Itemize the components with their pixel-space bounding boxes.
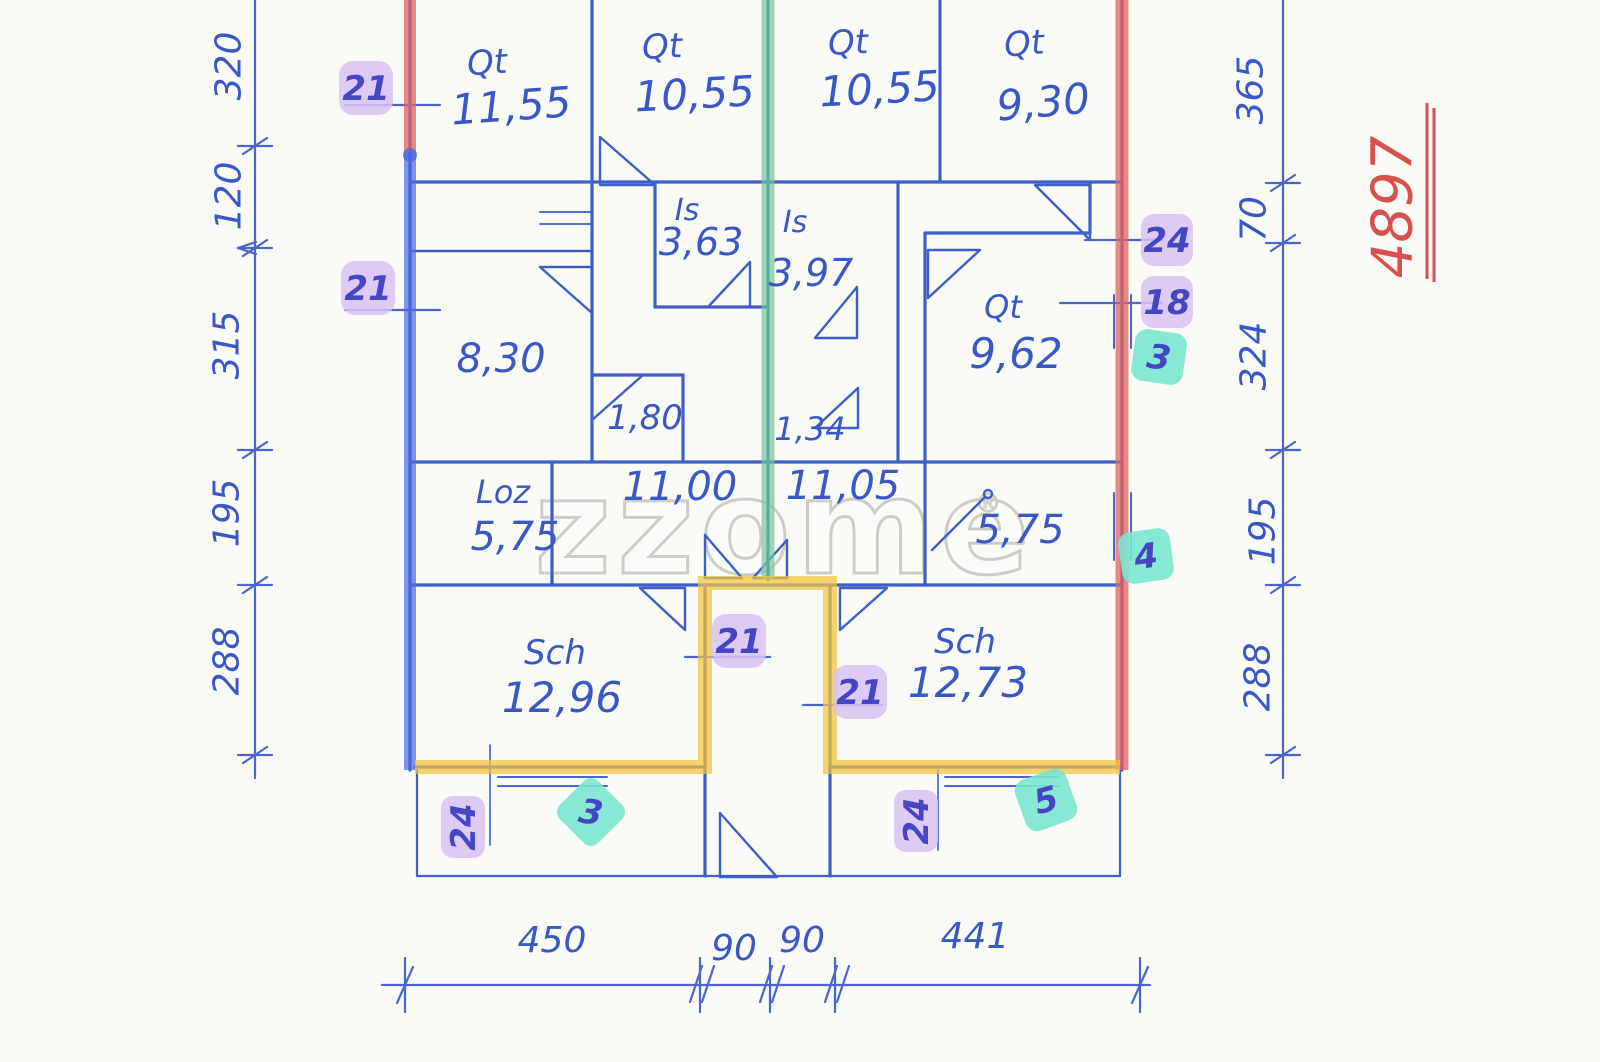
floorplan-scan: zzome ® bbox=[0, 0, 1600, 1062]
dim-bottom-90b: 90 bbox=[779, 920, 825, 961]
dim-left-288: 288 bbox=[207, 627, 248, 696]
room-180-area: 1,80 bbox=[607, 398, 683, 438]
room-sch2-area: 12,73 bbox=[908, 658, 1028, 707]
badge-purple-left-top-value: 21 bbox=[342, 69, 389, 109]
badge-purple-right-18-value: 18 bbox=[1143, 283, 1190, 323]
dim-bottom-90a: 90 bbox=[711, 928, 757, 969]
dim-left-195: 195 bbox=[207, 479, 248, 548]
floorplan-drawing: zzome ® bbox=[0, 0, 1600, 1062]
dim-left-315: 315 bbox=[207, 311, 248, 380]
dim-left-120: 120 bbox=[209, 162, 250, 231]
dim-right-365: 365 bbox=[1231, 56, 1272, 125]
dim-right-195: 195 bbox=[1243, 497, 1284, 566]
room-qt3-label: Qt bbox=[827, 22, 871, 64]
dimension-chain-left: 320 120 315 195 288 bbox=[207, 0, 272, 778]
dim-bottom-450: 450 bbox=[518, 920, 587, 961]
dim-right-324: 324 bbox=[1234, 322, 1275, 391]
room-is1-area: 3,63 bbox=[659, 220, 744, 264]
red-underline bbox=[1427, 103, 1434, 282]
badge-purple-left-mid-value: 21 bbox=[344, 269, 391, 309]
room-is2-area: 3,97 bbox=[769, 251, 854, 295]
room-830-area: 8,30 bbox=[456, 336, 545, 382]
room-qt3-area: 10,55 bbox=[818, 61, 941, 116]
room-qt2-label: Qt bbox=[641, 26, 685, 68]
highlight-blue-dot bbox=[403, 148, 417, 162]
room-575-area: 5,75 bbox=[975, 507, 1064, 553]
room-qt1-area: 11,55 bbox=[449, 77, 572, 134]
badge-purple-terrace-left-value: 24 bbox=[444, 803, 484, 850]
room-is2-label: Is bbox=[783, 205, 807, 240]
dim-bottom-441: 441 bbox=[941, 916, 1010, 957]
dim-right-70: 70 bbox=[1234, 196, 1275, 242]
room-qt962-label: Qt bbox=[984, 288, 1023, 326]
room-qt4-label: Qt bbox=[1002, 22, 1047, 65]
room-1105-area: 11,05 bbox=[786, 463, 901, 509]
room-loz-label: Loz bbox=[476, 473, 531, 511]
dim-right-288: 288 bbox=[1238, 643, 1279, 712]
dimension-chain-right: 365 70 324 195 288 bbox=[1231, 0, 1300, 778]
room-qt2-area: 10,55 bbox=[633, 66, 756, 121]
room-1100-area: 11,00 bbox=[623, 464, 738, 510]
badge-purple-right-24-value: 24 bbox=[1143, 221, 1190, 261]
room-qt962-area: 9,62 bbox=[969, 329, 1063, 378]
room-qt4-area: 9,30 bbox=[995, 74, 1092, 131]
badge-purple-terrace-right-value: 24 bbox=[897, 797, 937, 844]
room-qt1-label: Qt bbox=[466, 42, 510, 85]
red-annotation: 4897 bbox=[1361, 103, 1434, 282]
dim-left-320: 320 bbox=[209, 32, 250, 101]
room-134-area: 1,34 bbox=[774, 410, 845, 448]
room-loz-area: 5,75 bbox=[470, 514, 559, 560]
badge-purple-vest-left-value: 21 bbox=[715, 622, 762, 662]
badge-purple-vest-right-value: 21 bbox=[836, 673, 883, 713]
room-sch2-label: Sch bbox=[934, 622, 996, 662]
room-sch1-label: Sch bbox=[524, 633, 586, 673]
dimension-chain-bottom: 450 90 90 441 bbox=[382, 916, 1150, 1012]
red-number: 4897 bbox=[1361, 135, 1426, 278]
room-sch1-area: 12,96 bbox=[502, 673, 622, 722]
